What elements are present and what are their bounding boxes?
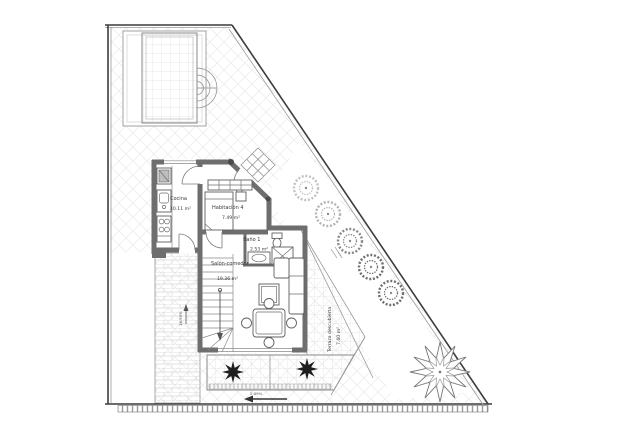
bed xyxy=(205,192,233,230)
stove xyxy=(157,216,171,242)
label-salon-area: 19.36 m² xyxy=(217,276,238,282)
label-habitacion4-area: 7.49 m² xyxy=(222,215,240,221)
chair xyxy=(242,318,252,328)
wardrobe xyxy=(208,180,252,190)
planter-plant xyxy=(296,358,318,380)
sidewalk-area xyxy=(110,252,157,403)
bush xyxy=(359,255,383,279)
label-habitacion4: Habitación 4 xyxy=(212,204,244,211)
label-cocina: Cocina xyxy=(170,196,187,202)
column-dot xyxy=(228,159,234,165)
label-bano1: Baño 1 xyxy=(243,237,261,243)
label-terrace-slope: 2.09% xyxy=(250,391,263,396)
column-dot xyxy=(266,197,271,202)
driveway-ramp xyxy=(155,253,200,403)
label-bano1-area: 2.53 m² xyxy=(250,247,268,253)
label-terraza-area: 7.60 m² xyxy=(336,327,342,345)
chair xyxy=(264,338,274,348)
label-ramp-slope: 16.95% xyxy=(178,311,183,326)
chair xyxy=(287,318,297,328)
boundary-bottom-hatch xyxy=(118,406,488,413)
bush xyxy=(294,176,318,200)
label-salon: Salón-comedor xyxy=(211,260,250,267)
toilet xyxy=(272,233,282,248)
pool xyxy=(123,31,217,126)
label-cocina-area: 10.11 m² xyxy=(170,206,191,212)
label-terraza: Terraza descubierta xyxy=(327,307,333,353)
chair xyxy=(264,299,274,309)
bath-vanity xyxy=(248,252,270,264)
wall-stub xyxy=(152,252,166,258)
bush xyxy=(379,281,403,305)
bush xyxy=(316,202,340,226)
sink xyxy=(157,190,171,212)
floor-plan-canvas: Cocina 10.11 m² Habitación 4 7.49 m² Bañ… xyxy=(0,0,630,423)
floor-plan-page: Cocina 10.11 m² Habitación 4 7.49 m² Bañ… xyxy=(0,0,630,423)
nightstand xyxy=(236,192,246,201)
pool-basin xyxy=(142,33,197,123)
bush xyxy=(338,229,362,253)
fridge xyxy=(157,168,171,184)
window-north xyxy=(164,159,196,166)
planter-plant xyxy=(222,361,244,383)
window-south-slider xyxy=(218,347,292,353)
